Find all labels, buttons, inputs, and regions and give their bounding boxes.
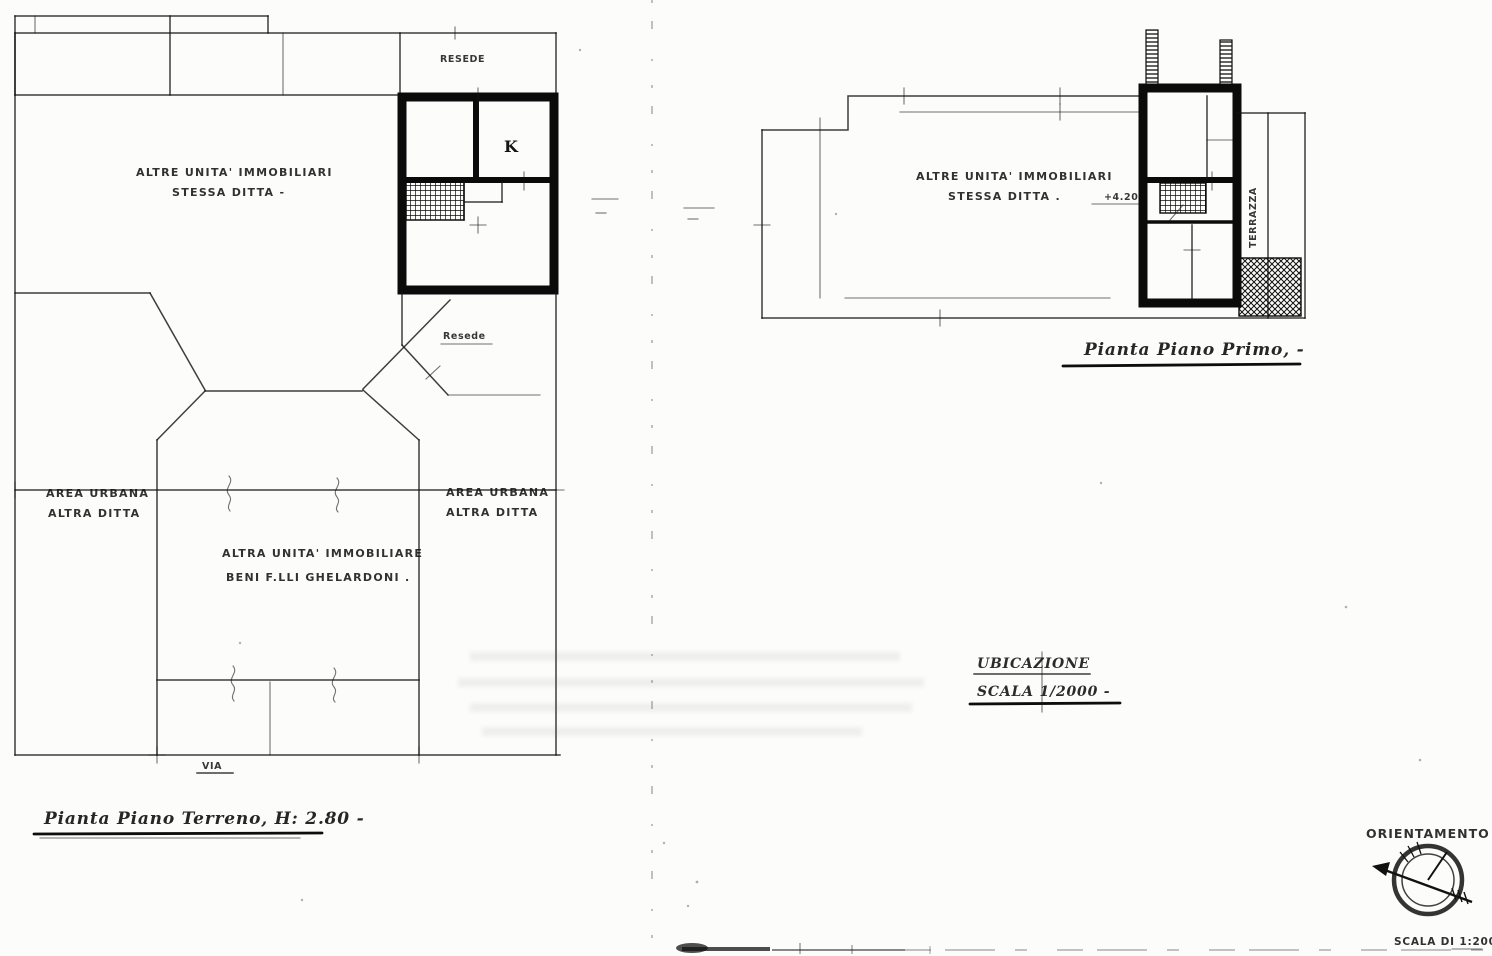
wall-stub-hatch	[1146, 30, 1158, 88]
area-left-label-line1: AREA URBANA	[46, 487, 149, 500]
first-floor-title: Pianta Piano Primo, -	[1083, 340, 1305, 360]
kitchen-label: K	[504, 137, 519, 156]
first-floor-plan: ALTRE UNITA' IMMOBILIARI STESSA DITTA . …	[754, 30, 1305, 366]
area-right-label-line1: AREA URBANA	[446, 486, 549, 499]
side-yard: Resede	[402, 292, 540, 395]
orientation-block: ORIENTAMENTO SCALA DI 1:200	[1366, 826, 1492, 949]
location-note: UBICAZIONE SCALA 1/2000 -	[970, 652, 1120, 712]
stair-block-hatch	[1160, 183, 1206, 213]
other-units-label-line2: STESSA DITTA -	[172, 186, 285, 199]
terrace: TERRAZZA	[1237, 113, 1305, 318]
bleed-through-text	[458, 652, 924, 736]
gate-mark	[227, 476, 230, 511]
terrace-label: TERRAZZA	[1248, 187, 1259, 248]
gate-mark	[332, 668, 335, 702]
scanned-floor-plan-sheet: ALTRE UNITA' IMMOBILIARI STESSA DITTA - …	[0, 0, 1492, 956]
plan-canvas: ALTRE UNITA' IMMOBILIARI STESSA DITTA - …	[0, 0, 1492, 956]
gate-mark	[231, 666, 234, 701]
elevation-label: +4.20	[1104, 192, 1138, 203]
yard-side-label: Resede	[443, 331, 486, 342]
other-units-label-line1: ALTRE UNITA' IMMOBILIARI	[136, 166, 333, 179]
stair-block-hatch	[406, 182, 464, 220]
gate-mark	[335, 478, 338, 512]
compass-icon	[1372, 842, 1472, 914]
first-floor-building	[1143, 30, 1237, 303]
ground-floor-building: K	[402, 88, 554, 290]
wall-stub-hatch	[1220, 40, 1232, 88]
area-left-label-line2: ALTRA DITTA	[48, 507, 140, 520]
ground-floor-title: Pianta Piano Terreno, H: 2.80 -	[43, 809, 365, 829]
ff-other-units-label-line2: STESSA DITTA .	[948, 190, 1061, 203]
area-right-label-line2: ALTRA DITTA	[446, 506, 538, 519]
street-label: VIA	[202, 761, 222, 772]
scale-label: SCALA DI 1:200	[1394, 936, 1492, 948]
ff-other-units-label-line1: ALTRE UNITA' IMMOBILIARI	[916, 170, 1113, 183]
yard-top-label: RESEDE	[440, 54, 485, 65]
ground-floor-plan: ALTRE UNITA' IMMOBILIARI STESSA DITTA - …	[15, 16, 564, 838]
fold-line	[592, 0, 714, 956]
compass-needle-arrowhead	[1372, 862, 1390, 876]
location-note-line2: SCALA 1/2000 -	[977, 684, 1110, 700]
location-note-line1: UBICAZIONE	[977, 656, 1090, 672]
central-parcel-label-line2: BENI F.LLI GHELARDONI .	[226, 571, 410, 584]
terrace-hatch	[1239, 258, 1301, 316]
central-parcel-label-line1: ALTRA UNITA' IMMOBILIARE	[222, 547, 423, 560]
first-floor-boundary	[754, 88, 1305, 326]
orientation-title: ORIENTAMENTO	[1366, 826, 1490, 841]
